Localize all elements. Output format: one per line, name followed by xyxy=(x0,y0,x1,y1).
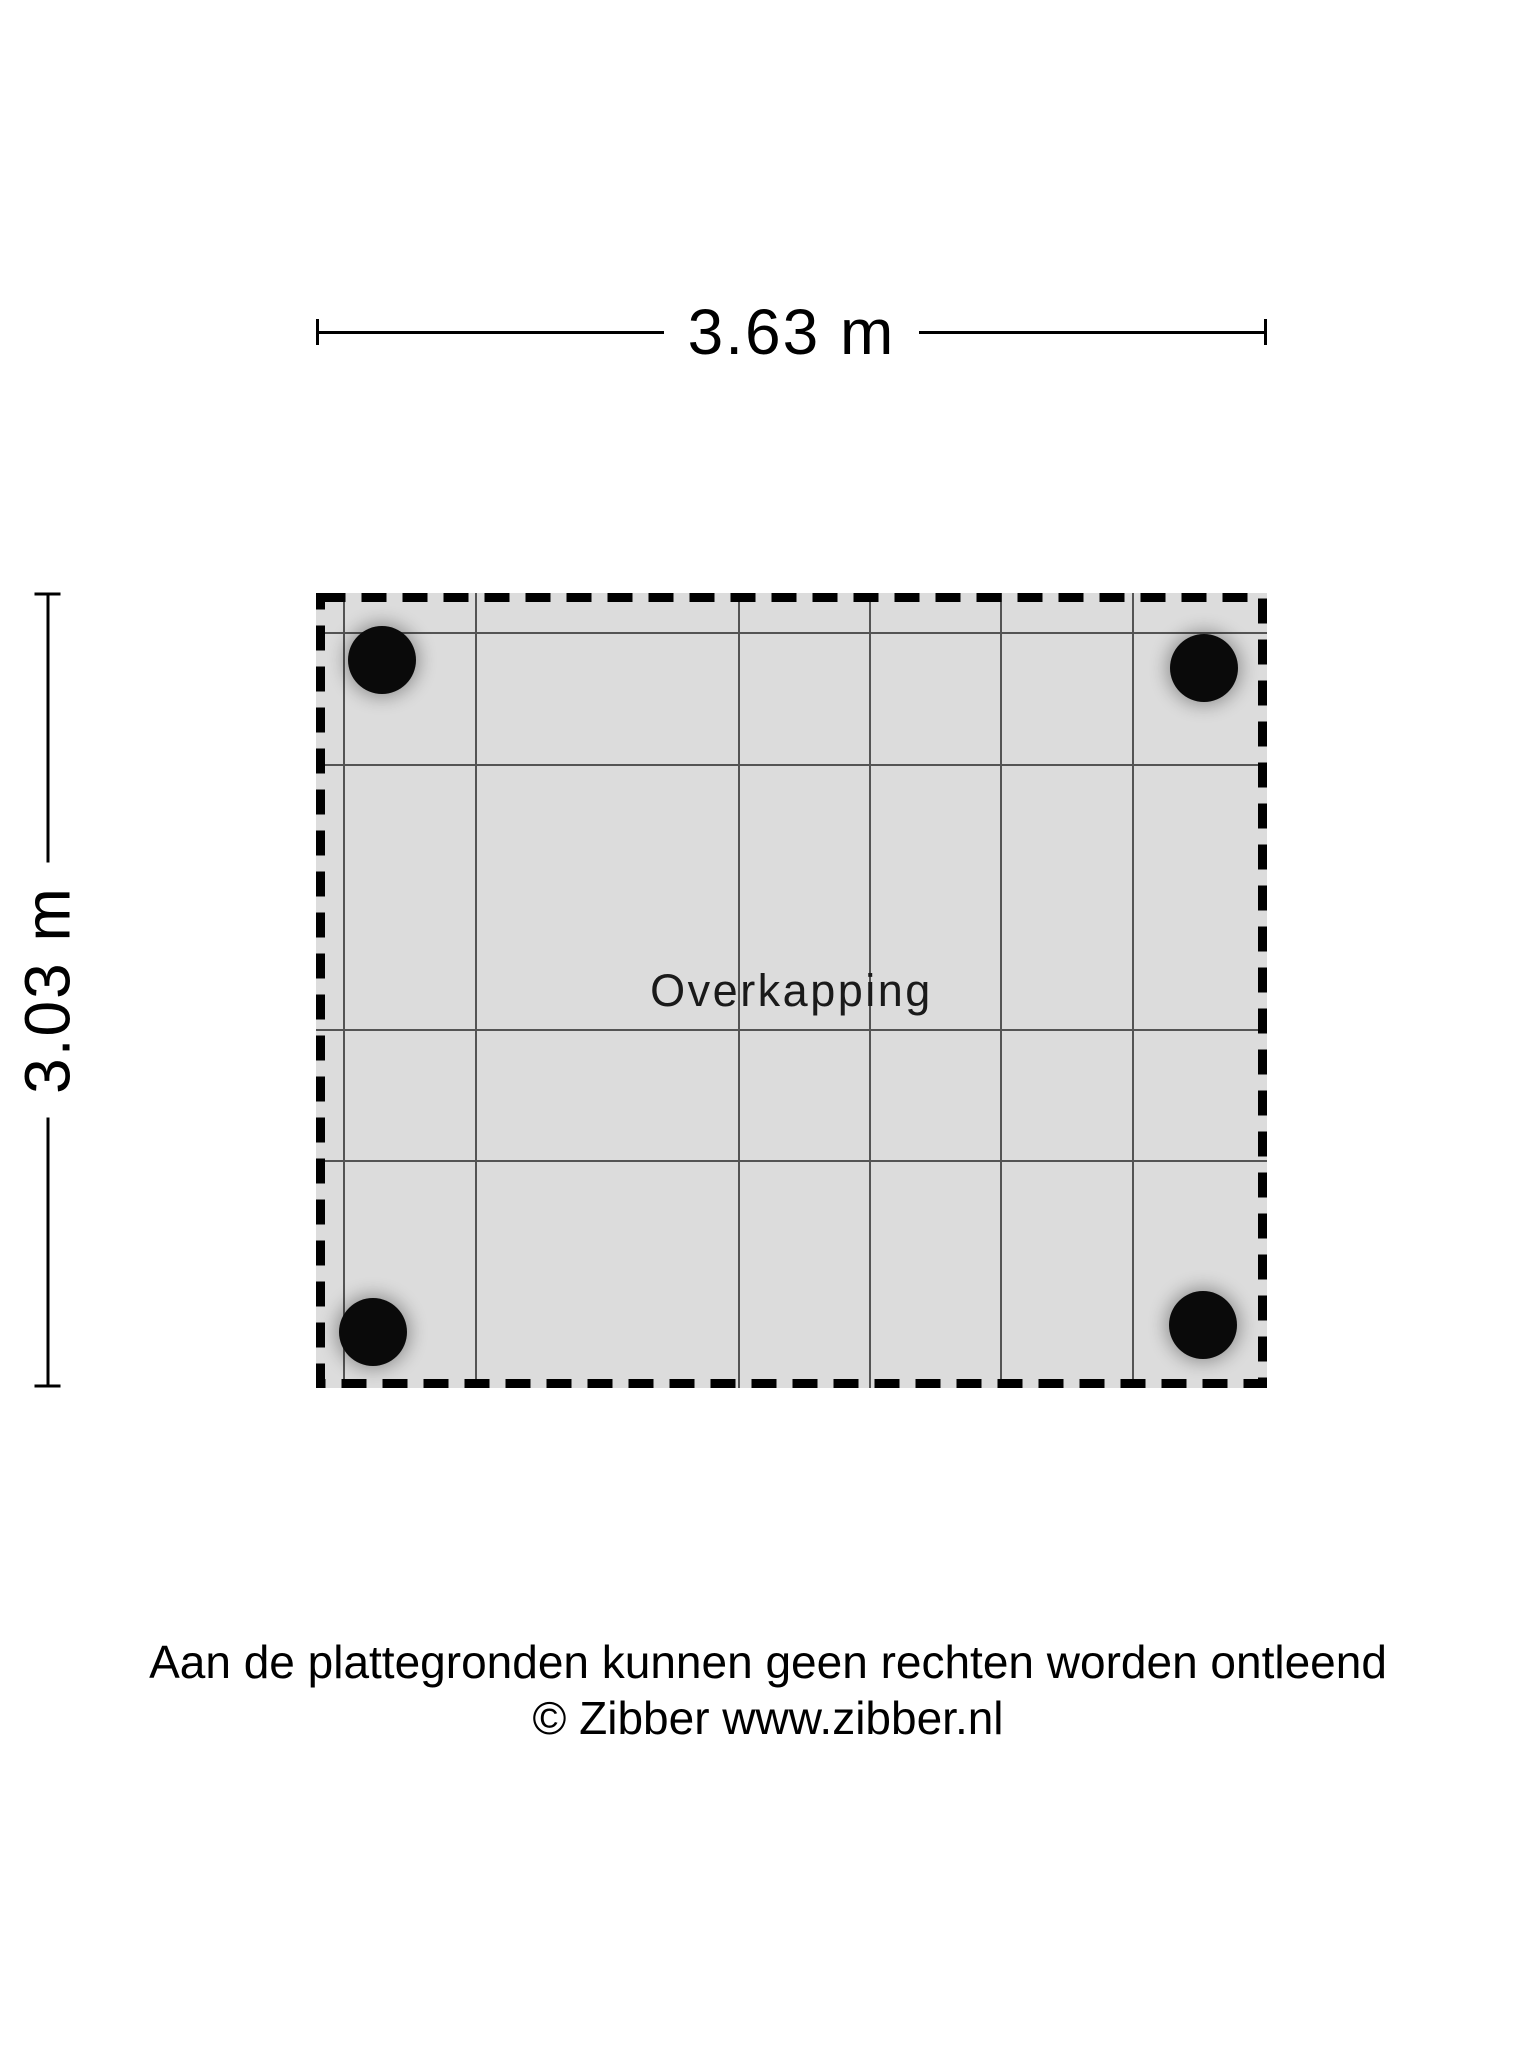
dimension-tick-bottom xyxy=(35,1385,61,1388)
floorplan-page: 3.63 m 3.03 m xyxy=(0,0,1536,2048)
post-top-right xyxy=(1170,634,1238,702)
dimension-line xyxy=(46,1118,49,1385)
post-bottom-left xyxy=(339,1298,407,1366)
plan-drawing xyxy=(316,593,1267,1388)
footer-disclaimer: Aan de plattegronden kunnen geen rechten… xyxy=(0,1634,1536,1690)
width-dimension: 3.63 m xyxy=(316,304,1267,360)
plan-fill xyxy=(316,593,1267,1388)
footer: Aan de plattegronden kunnen geen rechten… xyxy=(0,1634,1536,1746)
dimension-line xyxy=(919,331,1264,334)
plan-area: Overkapping xyxy=(316,593,1267,1388)
post-top-left xyxy=(348,626,416,694)
dimension-tick-top xyxy=(35,593,61,596)
height-dimension-label: 3.03 m xyxy=(16,862,80,1118)
post-bottom-right xyxy=(1169,1291,1237,1359)
dimension-line xyxy=(319,331,664,334)
footer-copyright: © Zibber www.zibber.nl xyxy=(0,1690,1536,1746)
dimension-tick-right xyxy=(1264,319,1267,345)
dimension-line xyxy=(46,596,49,863)
height-dimension: 3.03 m xyxy=(20,593,76,1388)
width-dimension-label: 3.63 m xyxy=(664,300,920,364)
